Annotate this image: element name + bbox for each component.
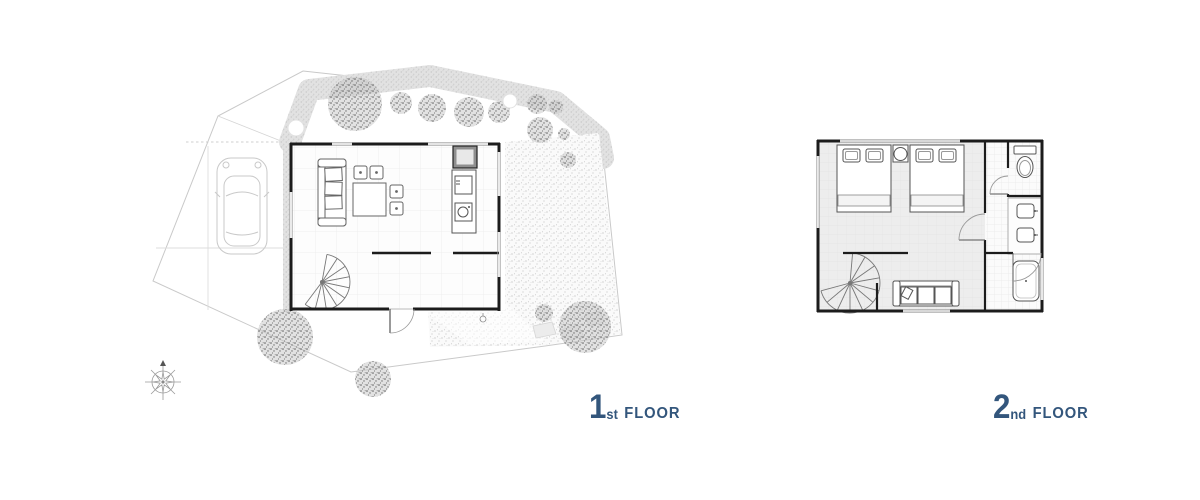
floor-number: 2 (993, 394, 1009, 421)
kitchen (452, 146, 477, 233)
tree (328, 77, 382, 131)
tree (559, 301, 611, 353)
first-floor-plan (140, 20, 650, 440)
floor-plan-sheet: 1 st FLOOR 2 nd FLOOR (0, 0, 1200, 500)
tree (527, 117, 553, 143)
site-inner-line (218, 116, 286, 143)
tree (558, 128, 570, 140)
driveway (156, 142, 290, 310)
tree (257, 309, 313, 365)
stove (455, 176, 472, 194)
tree-clearing (503, 94, 517, 108)
bed-right (910, 145, 964, 212)
bed-left (837, 145, 891, 212)
entrance-door (389, 309, 414, 333)
tree (549, 100, 563, 114)
tree (418, 94, 446, 122)
vanity-sinks (1008, 198, 1042, 254)
nightstand (893, 145, 908, 162)
second-floor-plan (805, 130, 1055, 325)
floor-word: FLOOR (624, 406, 680, 421)
car (215, 158, 269, 254)
kitchen-sink (455, 203, 472, 221)
north-arrow-icon (160, 360, 166, 366)
tree (535, 304, 553, 322)
sofa-2f (893, 281, 959, 306)
tree-clearing (288, 120, 304, 136)
floor-ordinal: nd (1010, 407, 1026, 421)
tree (560, 152, 576, 168)
floor-ordinal: st (606, 407, 617, 421)
floor-number: 1 (589, 394, 605, 421)
second-floor-label: 2 nd FLOOR (993, 394, 1089, 421)
tree (355, 361, 391, 397)
table-lamp (894, 148, 907, 161)
coffee-table (353, 183, 386, 216)
tree (454, 97, 484, 127)
tree (390, 92, 412, 114)
first-floor-label: 1 st FLOOR (589, 394, 680, 421)
sofa (318, 159, 346, 226)
floor-word: FLOOR (1033, 406, 1089, 421)
tree (527, 94, 547, 114)
compass-rose (145, 360, 181, 400)
